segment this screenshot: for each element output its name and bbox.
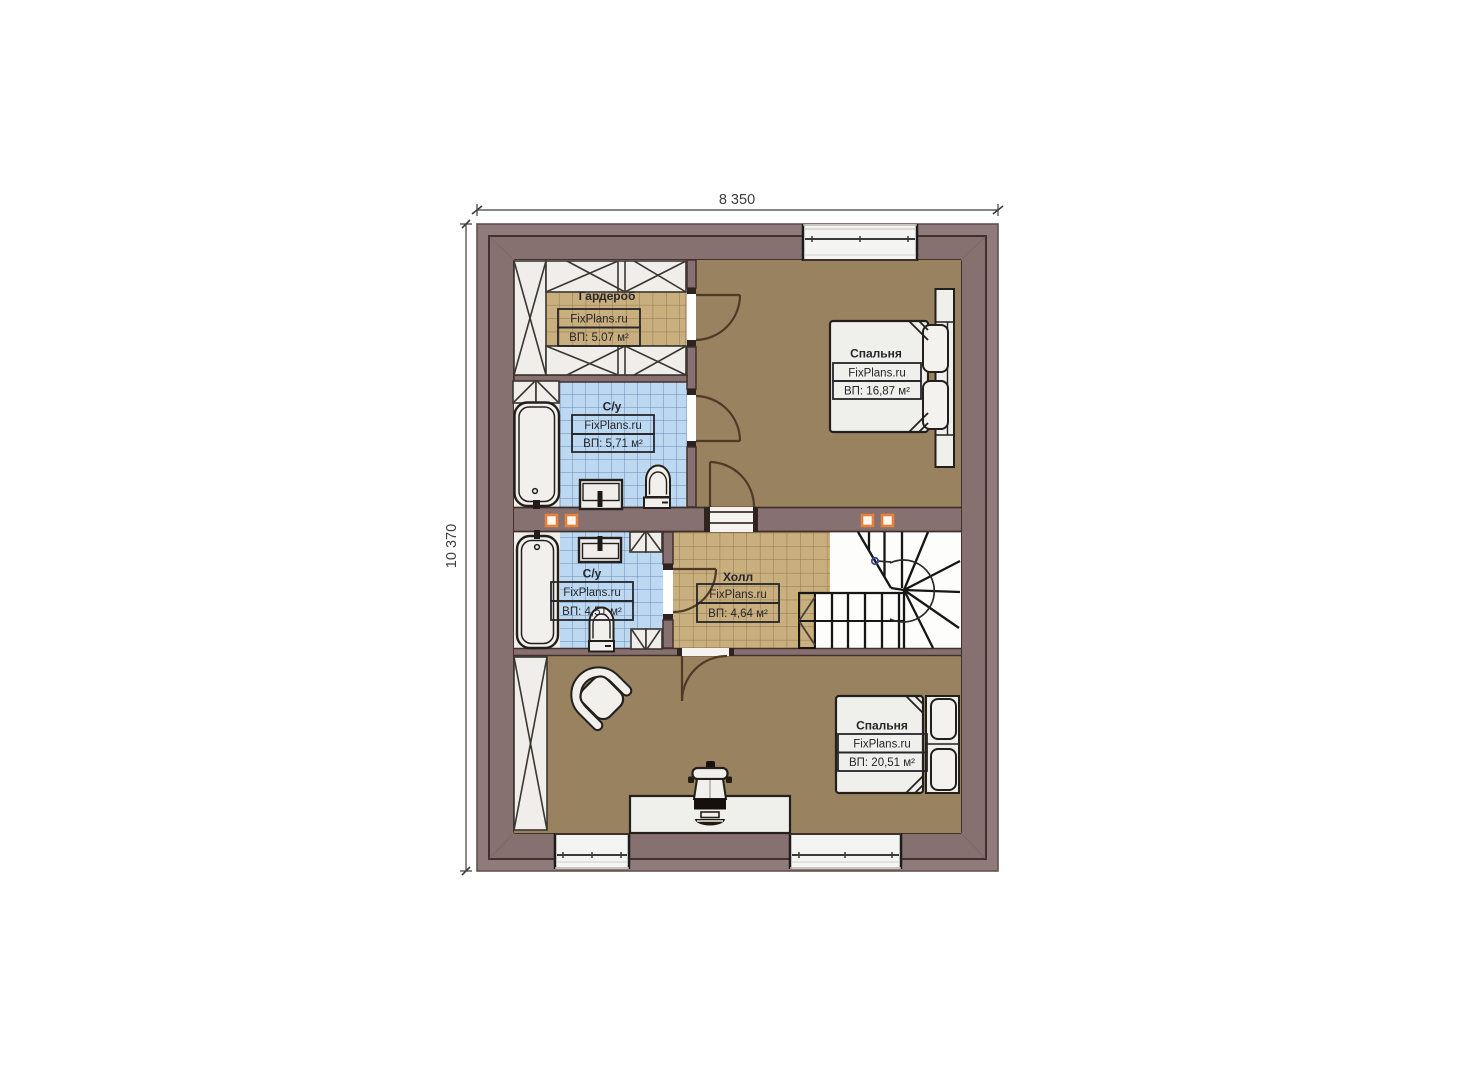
svg-text:ВП: 5,71 м²: ВП: 5,71 м² — [583, 438, 643, 450]
svg-text:8 350: 8 350 — [719, 192, 755, 208]
svg-text:FixPlans.ru: FixPlans.ru — [709, 589, 767, 601]
svg-text:ВП: 5.07 м²: ВП: 5.07 м² — [569, 332, 629, 344]
svg-text:С/у: С/у — [603, 400, 622, 414]
svg-text:FixPlans.ru: FixPlans.ru — [584, 420, 642, 432]
svg-text:С/у: С/у — [583, 567, 602, 581]
svg-text:10 370: 10 370 — [444, 524, 460, 568]
svg-text:FixPlans.ru: FixPlans.ru — [570, 314, 628, 326]
svg-text:ВП: 16,87 м²: ВП: 16,87 м² — [844, 386, 910, 398]
svg-text:FixPlans.ru: FixPlans.ru — [563, 587, 621, 599]
svg-text:ВП: 4,51 м²: ВП: 4,51 м² — [562, 606, 622, 618]
svg-text:ВП: 20,51 м²: ВП: 20,51 м² — [849, 757, 915, 769]
svg-text:FixPlans.ru: FixPlans.ru — [853, 739, 911, 751]
svg-text:Спальня: Спальня — [856, 719, 908, 733]
svg-text:FixPlans.ru: FixPlans.ru — [848, 368, 906, 380]
svg-text:Спальня: Спальня — [850, 347, 902, 361]
svg-text:Холл: Холл — [723, 570, 753, 584]
svg-text:Гардероб: Гардероб — [579, 289, 636, 303]
svg-text:ВП: 4,64 м²: ВП: 4,64 м² — [708, 608, 768, 620]
